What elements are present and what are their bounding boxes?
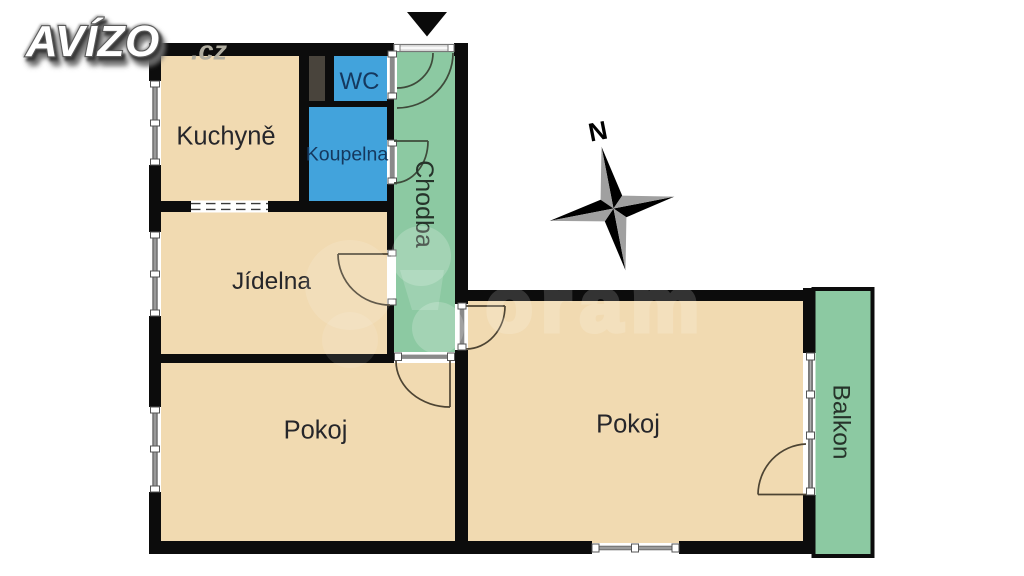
svg-text:WC: WC bbox=[340, 68, 380, 95]
svg-text:Pokoj: Pokoj bbox=[284, 417, 348, 445]
svg-text:oram: oram bbox=[486, 263, 708, 348]
svg-text:Kuchyně: Kuchyně bbox=[176, 123, 275, 151]
svg-text:Balkon: Balkon bbox=[828, 385, 855, 460]
svg-text:Koupelna: Koupelna bbox=[306, 144, 389, 166]
svg-text:Pokoj: Pokoj bbox=[596, 410, 660, 438]
svg-text:AVÍZO: AVÍZO bbox=[25, 16, 160, 66]
svg-text:Jídelna: Jídelna bbox=[232, 268, 311, 295]
svg-text:.cz: .cz bbox=[191, 36, 228, 66]
